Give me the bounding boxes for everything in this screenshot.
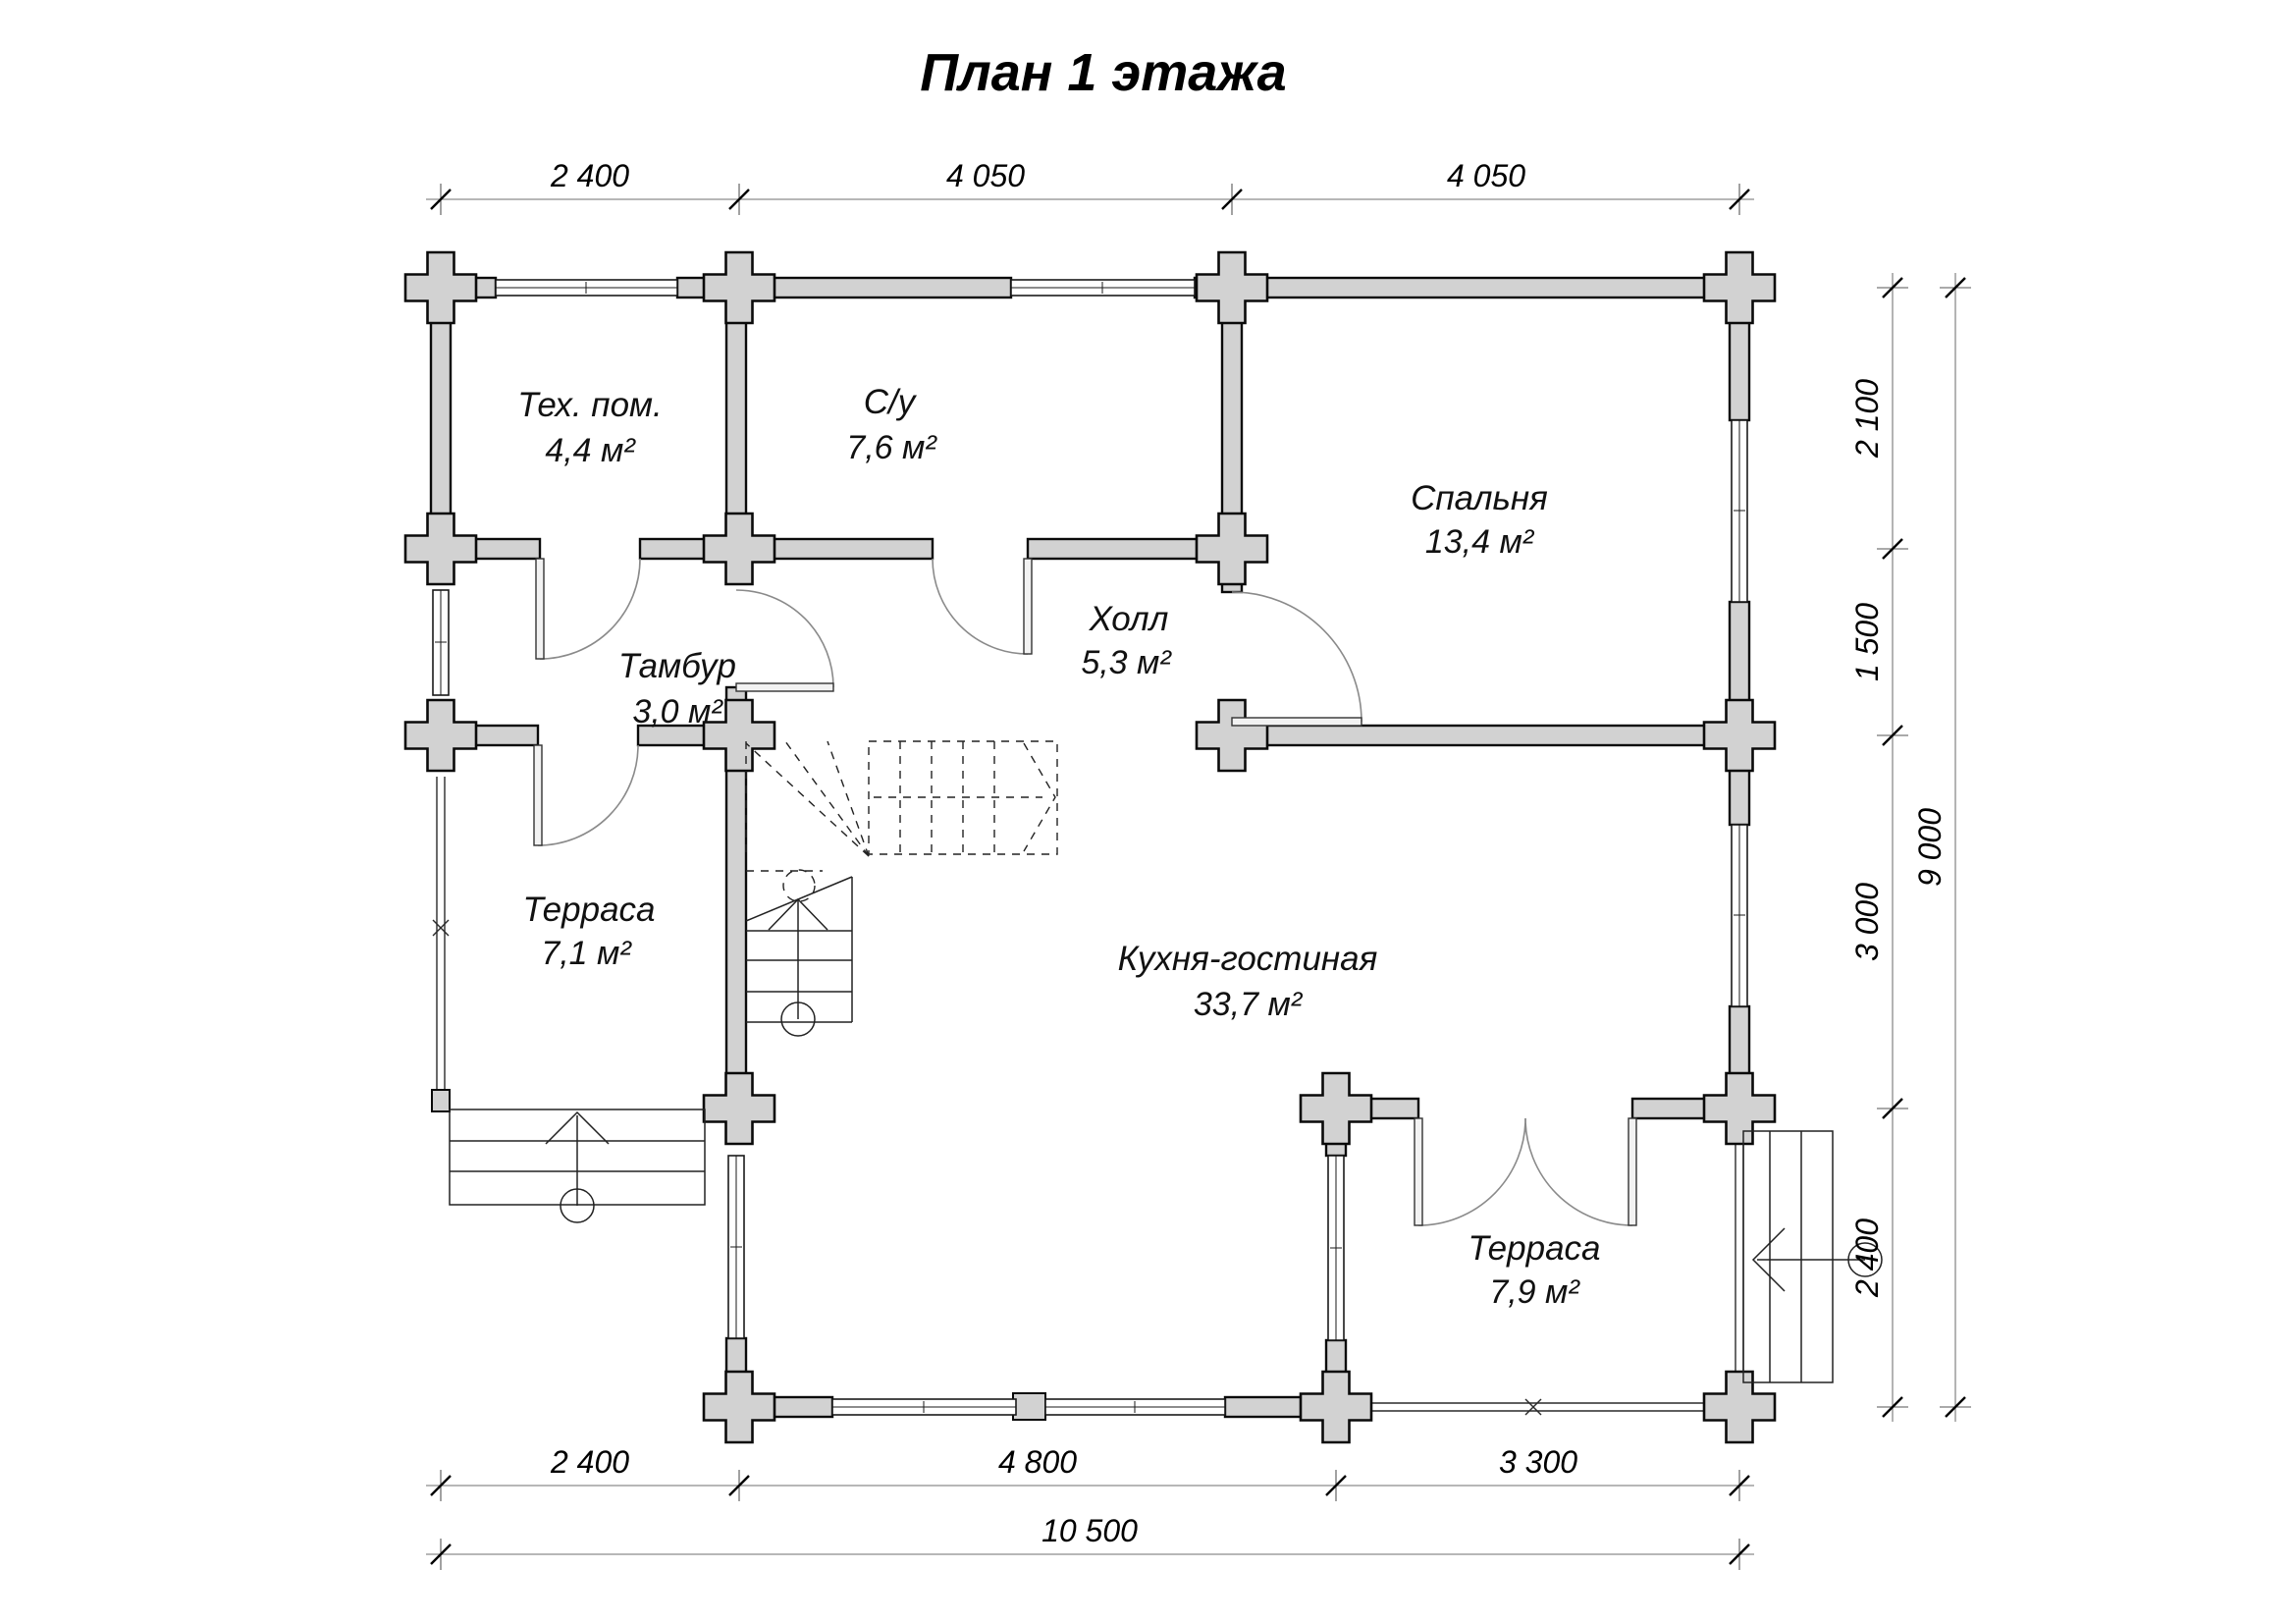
door-su-hall xyxy=(933,559,1032,654)
dim-right-3: 3 000 xyxy=(1849,883,1885,961)
room-label-hall: Холл 5,3 м² xyxy=(1081,600,1172,681)
svg-text:Тех. пом.: Тех. пом. xyxy=(517,386,663,424)
window-su-north xyxy=(1011,280,1195,296)
wall-segment xyxy=(1195,278,1749,298)
dim-right-total: 9 000 xyxy=(1912,808,1948,887)
window-tambour-west xyxy=(433,590,449,695)
dim-right-1: 2 100 xyxy=(1849,379,1885,459)
dim-right-2: 1 500 xyxy=(1849,603,1885,681)
log-cross-icon xyxy=(704,514,774,584)
room-label-kitchen: Кухня-гостиная 33,7 м² xyxy=(1118,940,1378,1023)
svg-text:33,7 м²: 33,7 м² xyxy=(1194,986,1304,1023)
door-kitchen-terrace-double xyxy=(1415,1118,1636,1225)
log-cross-icon xyxy=(704,1372,774,1442)
door-tambour-terrace xyxy=(534,745,638,845)
svg-text:Холл: Холл xyxy=(1089,600,1169,638)
wall-segment xyxy=(726,745,746,1109)
wall-segment xyxy=(726,298,746,539)
window-bedroom-east xyxy=(1732,420,1747,602)
dim-bottom-3: 3 300 xyxy=(1499,1444,1577,1480)
log-cross-icon xyxy=(1197,252,1267,323)
log-cross-icon xyxy=(1704,252,1775,323)
door-hall-bedroom xyxy=(1232,592,1362,726)
svg-text:7,1 м²: 7,1 м² xyxy=(541,935,632,972)
room-label-bedroom: Спальня 13,4 м² xyxy=(1411,479,1548,561)
wall-segment xyxy=(640,539,933,559)
wall-segment xyxy=(1222,298,1242,539)
wall-segment xyxy=(431,298,451,539)
room-label-tambour: Тамбур 3,0 м² xyxy=(618,647,736,730)
log-cross-icon xyxy=(1301,1073,1371,1144)
log-cross-icon xyxy=(1704,1073,1775,1144)
log-cross-icon xyxy=(1301,1372,1371,1442)
svg-text:Терраса: Терраса xyxy=(1468,1229,1600,1268)
svg-text:Терраса: Терраса xyxy=(522,891,655,929)
floor-plan-drawing: План 1 этажа xyxy=(0,0,2296,1623)
door-tech-tambour xyxy=(536,559,640,659)
log-cross-icon xyxy=(704,252,774,323)
room-label-tech: Тех. пом. 4,4 м² xyxy=(517,386,663,469)
dim-top-3: 4 050 xyxy=(1447,158,1525,193)
staircase xyxy=(746,741,1057,1036)
page-title: План 1 этажа xyxy=(920,43,1286,102)
log-cross-icon xyxy=(704,1073,774,1144)
log-cross-icon xyxy=(405,514,476,584)
svg-text:Спальня: Спальня xyxy=(1411,479,1548,517)
log-cross-icon xyxy=(405,700,476,771)
dim-bottom-2: 4 800 xyxy=(998,1444,1077,1480)
svg-text:Кухня-гостиная: Кухня-гостиная xyxy=(1118,940,1378,978)
dim-bottom-1: 2 400 xyxy=(550,1444,629,1480)
svg-text:4,4 м²: 4,4 м² xyxy=(545,432,636,469)
svg-text:7,9 м²: 7,9 м² xyxy=(1489,1273,1580,1311)
svg-text:С/у: С/у xyxy=(864,383,918,421)
stair-post-upper xyxy=(783,870,815,901)
dim-top-2: 4 050 xyxy=(946,158,1025,193)
svg-text:Тамбур: Тамбур xyxy=(618,647,736,685)
log-cross-icon xyxy=(1704,700,1775,771)
dim-top-1: 2 400 xyxy=(550,158,629,193)
window-kitchen-south-2 xyxy=(1045,1399,1225,1415)
room-label-terrace-west: Терраса 7,1 м² xyxy=(522,891,655,972)
svg-text:5,3 м²: 5,3 м² xyxy=(1081,644,1172,681)
log-cross-icon xyxy=(1197,700,1267,771)
dim-right-4: 2 400 xyxy=(1849,1218,1885,1298)
svg-text:13,4 м²: 13,4 м² xyxy=(1425,523,1535,561)
window-kitchen-west xyxy=(728,1156,744,1338)
window-kitchen-south-1 xyxy=(832,1399,1016,1415)
room-label-su: С/у 7,6 м² xyxy=(846,383,937,466)
window-tech-north xyxy=(496,280,677,296)
floor-plan-page: План 1 этажа xyxy=(0,0,2296,1623)
railing-terrace-south xyxy=(1355,1396,1735,1418)
dim-bottom-total: 10 500 xyxy=(1041,1513,1138,1548)
room-label-terrace-east: Терраса 7,9 м² xyxy=(1468,1229,1600,1311)
wall-pier xyxy=(1013,1393,1045,1420)
railings xyxy=(432,777,1743,1418)
entrance-steps-west xyxy=(450,1109,705,1222)
svg-text:7,6 м²: 7,6 м² xyxy=(846,429,937,466)
door-tambour-hall xyxy=(736,590,833,691)
railing-terrace-west xyxy=(432,777,450,1111)
window-kitchen-east xyxy=(1732,825,1747,1006)
wall-segment xyxy=(1222,726,1749,745)
log-cross-icon xyxy=(1197,514,1267,584)
log-cross-icon xyxy=(405,252,476,323)
railing-terrace-east-edge xyxy=(1735,1129,1743,1384)
window-kitchen-terrace xyxy=(1328,1156,1344,1340)
svg-text:3,0 м²: 3,0 м² xyxy=(632,693,723,730)
